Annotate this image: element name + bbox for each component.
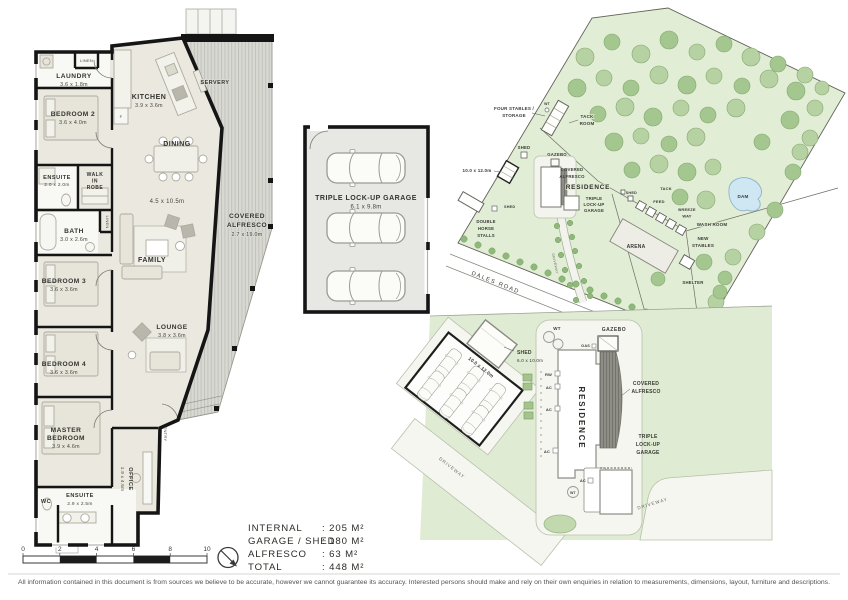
label-alfresco-1: COVERED bbox=[229, 213, 265, 220]
room-label-office: OFFICE bbox=[127, 467, 133, 491]
garden-bush bbox=[544, 515, 576, 533]
site-label-wt: WT bbox=[544, 102, 551, 106]
garage-plan: TRIPLE LOCK-UP GARAGE 6.1 x 9.8m bbox=[305, 123, 432, 312]
site-label-residence: RESIDENCE bbox=[566, 184, 611, 191]
room-label-wc: WC bbox=[41, 499, 51, 505]
room-dims-ensuite2: 2.0 x 2.0m bbox=[44, 182, 69, 188]
garage-site bbox=[564, 196, 579, 210]
label-servery: SERVERY bbox=[201, 80, 230, 86]
room-label-wir-1: WALK bbox=[87, 172, 104, 178]
closeup-label-garage-2: LOCK-UP bbox=[636, 442, 661, 448]
site-label-dhs-3: STALLS bbox=[477, 233, 495, 238]
wt-tank-1 bbox=[544, 332, 555, 343]
closeup-label-gazebo: GAZEBO bbox=[602, 327, 626, 333]
room-label-kitchen: KITCHEN bbox=[132, 94, 167, 101]
label-alfresco-2: ALFRESCO bbox=[227, 222, 267, 229]
label-linen-bath: LINEN bbox=[105, 215, 110, 228]
closeup-label-ac2: AC bbox=[546, 407, 552, 412]
site-label-garage-2: LOCK-UP bbox=[584, 202, 605, 207]
room-label-bath: BATH bbox=[64, 228, 84, 235]
room-dims-office: 1.9 x 4.5m bbox=[120, 467, 125, 491]
site-label-tack-room-2: ROOM bbox=[580, 121, 595, 126]
room-dims-family: 4.5 x 10.5m bbox=[150, 199, 185, 205]
site-label-wash-room: WASH ROOM bbox=[697, 222, 728, 227]
room-label-wir-2: IN bbox=[92, 179, 98, 185]
closeup-label-wt: WT bbox=[553, 326, 560, 331]
site-label-breeze-1: BREEZE bbox=[678, 207, 696, 212]
room-dims-lounge: 3.8 x 3.6m bbox=[158, 333, 186, 339]
room-dims-master: 3.9 x 4.6m bbox=[52, 444, 80, 450]
disclaimer-text: All information contained in this docume… bbox=[18, 579, 830, 586]
site-label-shed-small: SHED bbox=[626, 191, 637, 195]
room-label-bedroom2: BEDROOM 2 bbox=[51, 111, 95, 118]
scale-tick-8: 8 bbox=[168, 546, 172, 553]
site-label-arena: ARENA bbox=[627, 244, 646, 250]
site-label-tack-room-1: TACK bbox=[581, 114, 595, 119]
shed-lower-building bbox=[492, 206, 497, 211]
site-label-feed: FEED bbox=[653, 199, 664, 204]
site-label-new-stables-2: STABLES bbox=[692, 243, 714, 248]
room-label-laundry: LAUNDRY bbox=[56, 73, 92, 80]
site-label-tack: TACK bbox=[660, 186, 672, 191]
car-1 bbox=[327, 150, 405, 187]
site-label-dhs-2: HORSE bbox=[478, 226, 494, 231]
room-label-bedroom3: BEDROOM 3 bbox=[42, 278, 86, 285]
legend-value-total: : 448 M² bbox=[322, 562, 364, 573]
site-label-garage-1: TRIPLE bbox=[586, 196, 602, 201]
driveway-right bbox=[640, 470, 772, 540]
site-label-carport-dims: 10.0 x 12.0m bbox=[463, 168, 492, 173]
area-legend: INTERNAL : 205 M² GARAGE / SHED : 180 M²… bbox=[248, 523, 364, 573]
closeup-label-wt-bottom: WT bbox=[570, 491, 576, 495]
room-dims-laundry: 3.6 x 1.8m bbox=[60, 82, 88, 88]
room-dims-bedroom2: 3.6 x 4.0m bbox=[59, 120, 87, 126]
label-entry: ENTRY bbox=[163, 427, 168, 442]
alfresco-closeup bbox=[600, 352, 622, 448]
room-label-wir-3: ROBE bbox=[87, 185, 104, 191]
legend-value-alfresco: : 63 M² bbox=[322, 549, 358, 560]
site-label-garage-3: GARAGE bbox=[584, 208, 604, 213]
deck-top-edge bbox=[181, 34, 274, 42]
label-linen-laundry: LINEN bbox=[80, 58, 93, 63]
floorplan-document: LAUNDRY 3.6 x 1.8m LINEN BEDROOM 2 3.6 x… bbox=[0, 0, 848, 600]
site-label-shed-upper: SHED bbox=[518, 145, 531, 150]
site-label-shed-lower: SHED bbox=[504, 205, 515, 209]
room-label-bedroom4: BEDROOM 4 bbox=[42, 361, 86, 368]
site-label-four-stables-2: STORAGE bbox=[502, 113, 526, 118]
site-label-shelter: SHELTER bbox=[682, 280, 704, 285]
room-dims-bath: 3.0 x 2.6m bbox=[60, 237, 88, 243]
room-dims-bedroom4: 3.6 x 3.6m bbox=[50, 370, 78, 376]
garage-label: TRIPLE LOCK-UP GARAGE bbox=[315, 195, 417, 202]
wt-tank-2 bbox=[553, 339, 563, 349]
closeup-label-alfresco-2: ALFRESCO bbox=[631, 389, 660, 395]
legend-value-garage-shed: : 180 M² bbox=[322, 536, 364, 547]
closeup-label-ac4: AC bbox=[580, 478, 586, 483]
site-label-alfresco-1: COVERED bbox=[561, 167, 584, 172]
site-label-dam: DAM bbox=[737, 194, 748, 199]
residence-site bbox=[541, 167, 561, 207]
site-closeup: 10.0 x 12.0m WT GAZEBO GAS SHED 6.0 x 10… bbox=[391, 306, 772, 565]
legend-label-internal: INTERNAL bbox=[248, 523, 303, 534]
gas-unit bbox=[592, 344, 596, 348]
room-dims-ensuite-master: 2.9 x 2.5m bbox=[67, 501, 92, 507]
site-label-dhs-1: DOUBLE bbox=[476, 219, 495, 224]
room-label-ensuite2: ENSUITE bbox=[43, 175, 71, 181]
site-label-breeze-2: WAY bbox=[682, 214, 691, 219]
floorplan-svg: LAUNDRY 3.6 x 1.8m LINEN BEDROOM 2 3.6 x… bbox=[0, 0, 848, 600]
room-dims-bedroom3: 3.6 x 3.6m bbox=[50, 287, 78, 293]
wt-tank-site bbox=[545, 108, 549, 112]
closeup-label-residence: RESIDENCE bbox=[577, 387, 586, 450]
closeup-label-shed-dims: 6.0 x 10.0m bbox=[517, 358, 543, 363]
car-3 bbox=[327, 268, 405, 305]
main-floor-plan: LAUNDRY 3.6 x 1.8m LINEN BEDROOM 2 3.6 x… bbox=[34, 9, 275, 553]
car-2 bbox=[327, 210, 405, 247]
compass-icon bbox=[218, 548, 238, 568]
legend-value-internal: : 205 M² bbox=[322, 523, 364, 534]
garage-door-gap bbox=[310, 123, 328, 131]
room-label-dining: DINING bbox=[163, 141, 191, 148]
room-dims-kitchen: 3.9 x 3.6m bbox=[135, 103, 163, 109]
room-label-master-1: MASTER bbox=[51, 427, 82, 434]
room-label-master-2: BEDROOM bbox=[47, 435, 85, 442]
dims-alfresco: 2.7 x 19.0m bbox=[232, 232, 263, 238]
closeup-label-shed: SHED bbox=[517, 350, 532, 356]
site-label-dales-road: DALES ROAD bbox=[470, 271, 520, 296]
garage-dims: 6.1 x 9.8m bbox=[350, 205, 381, 211]
legend-label-alfresco: ALFRESCO bbox=[248, 549, 307, 560]
site-label-new-stables-1: NEW bbox=[697, 236, 709, 241]
label-fridge: F bbox=[120, 114, 123, 119]
pergola bbox=[186, 9, 236, 34]
closeup-label-rw: RW bbox=[545, 372, 552, 377]
room-label-lounge: LOUNGE bbox=[156, 324, 187, 331]
closeup-label-garage-3: GARAGE bbox=[636, 450, 660, 456]
gazebo-site bbox=[551, 159, 559, 166]
scale-tick-4: 4 bbox=[95, 546, 99, 553]
double-horse-stalls-building bbox=[458, 192, 484, 213]
scale-tick-6: 6 bbox=[132, 546, 136, 553]
scale-bar: 0 2 4 6 8 10 bbox=[21, 546, 211, 563]
scale-tick-0: 0 bbox=[21, 546, 25, 553]
scale-tick-2: 2 bbox=[58, 546, 62, 553]
legend-label-total: TOTAL bbox=[248, 562, 283, 573]
room-label-family: FAMILY bbox=[138, 257, 166, 264]
shed-upper-building bbox=[521, 152, 527, 158]
site-label-gazebo: GAZEBO bbox=[547, 152, 567, 157]
room-label-ensuite-master: ENSUITE bbox=[66, 493, 94, 499]
closeup-label-ac3: AC bbox=[544, 449, 550, 454]
closeup-label-gas: GAS bbox=[581, 344, 590, 348]
closeup-label-garage-1: TRIPLE bbox=[639, 434, 658, 440]
closeup-label-ac1: AC bbox=[546, 385, 552, 390]
site-label-four-stables-1: FOUR STABLES / bbox=[494, 106, 535, 111]
garage-closeup bbox=[600, 470, 632, 514]
scale-tick-10: 10 bbox=[203, 546, 211, 553]
closeup-label-alfresco-1: COVERED bbox=[633, 381, 659, 387]
site-label-alfresco-2: ALFRESCO bbox=[559, 174, 585, 179]
